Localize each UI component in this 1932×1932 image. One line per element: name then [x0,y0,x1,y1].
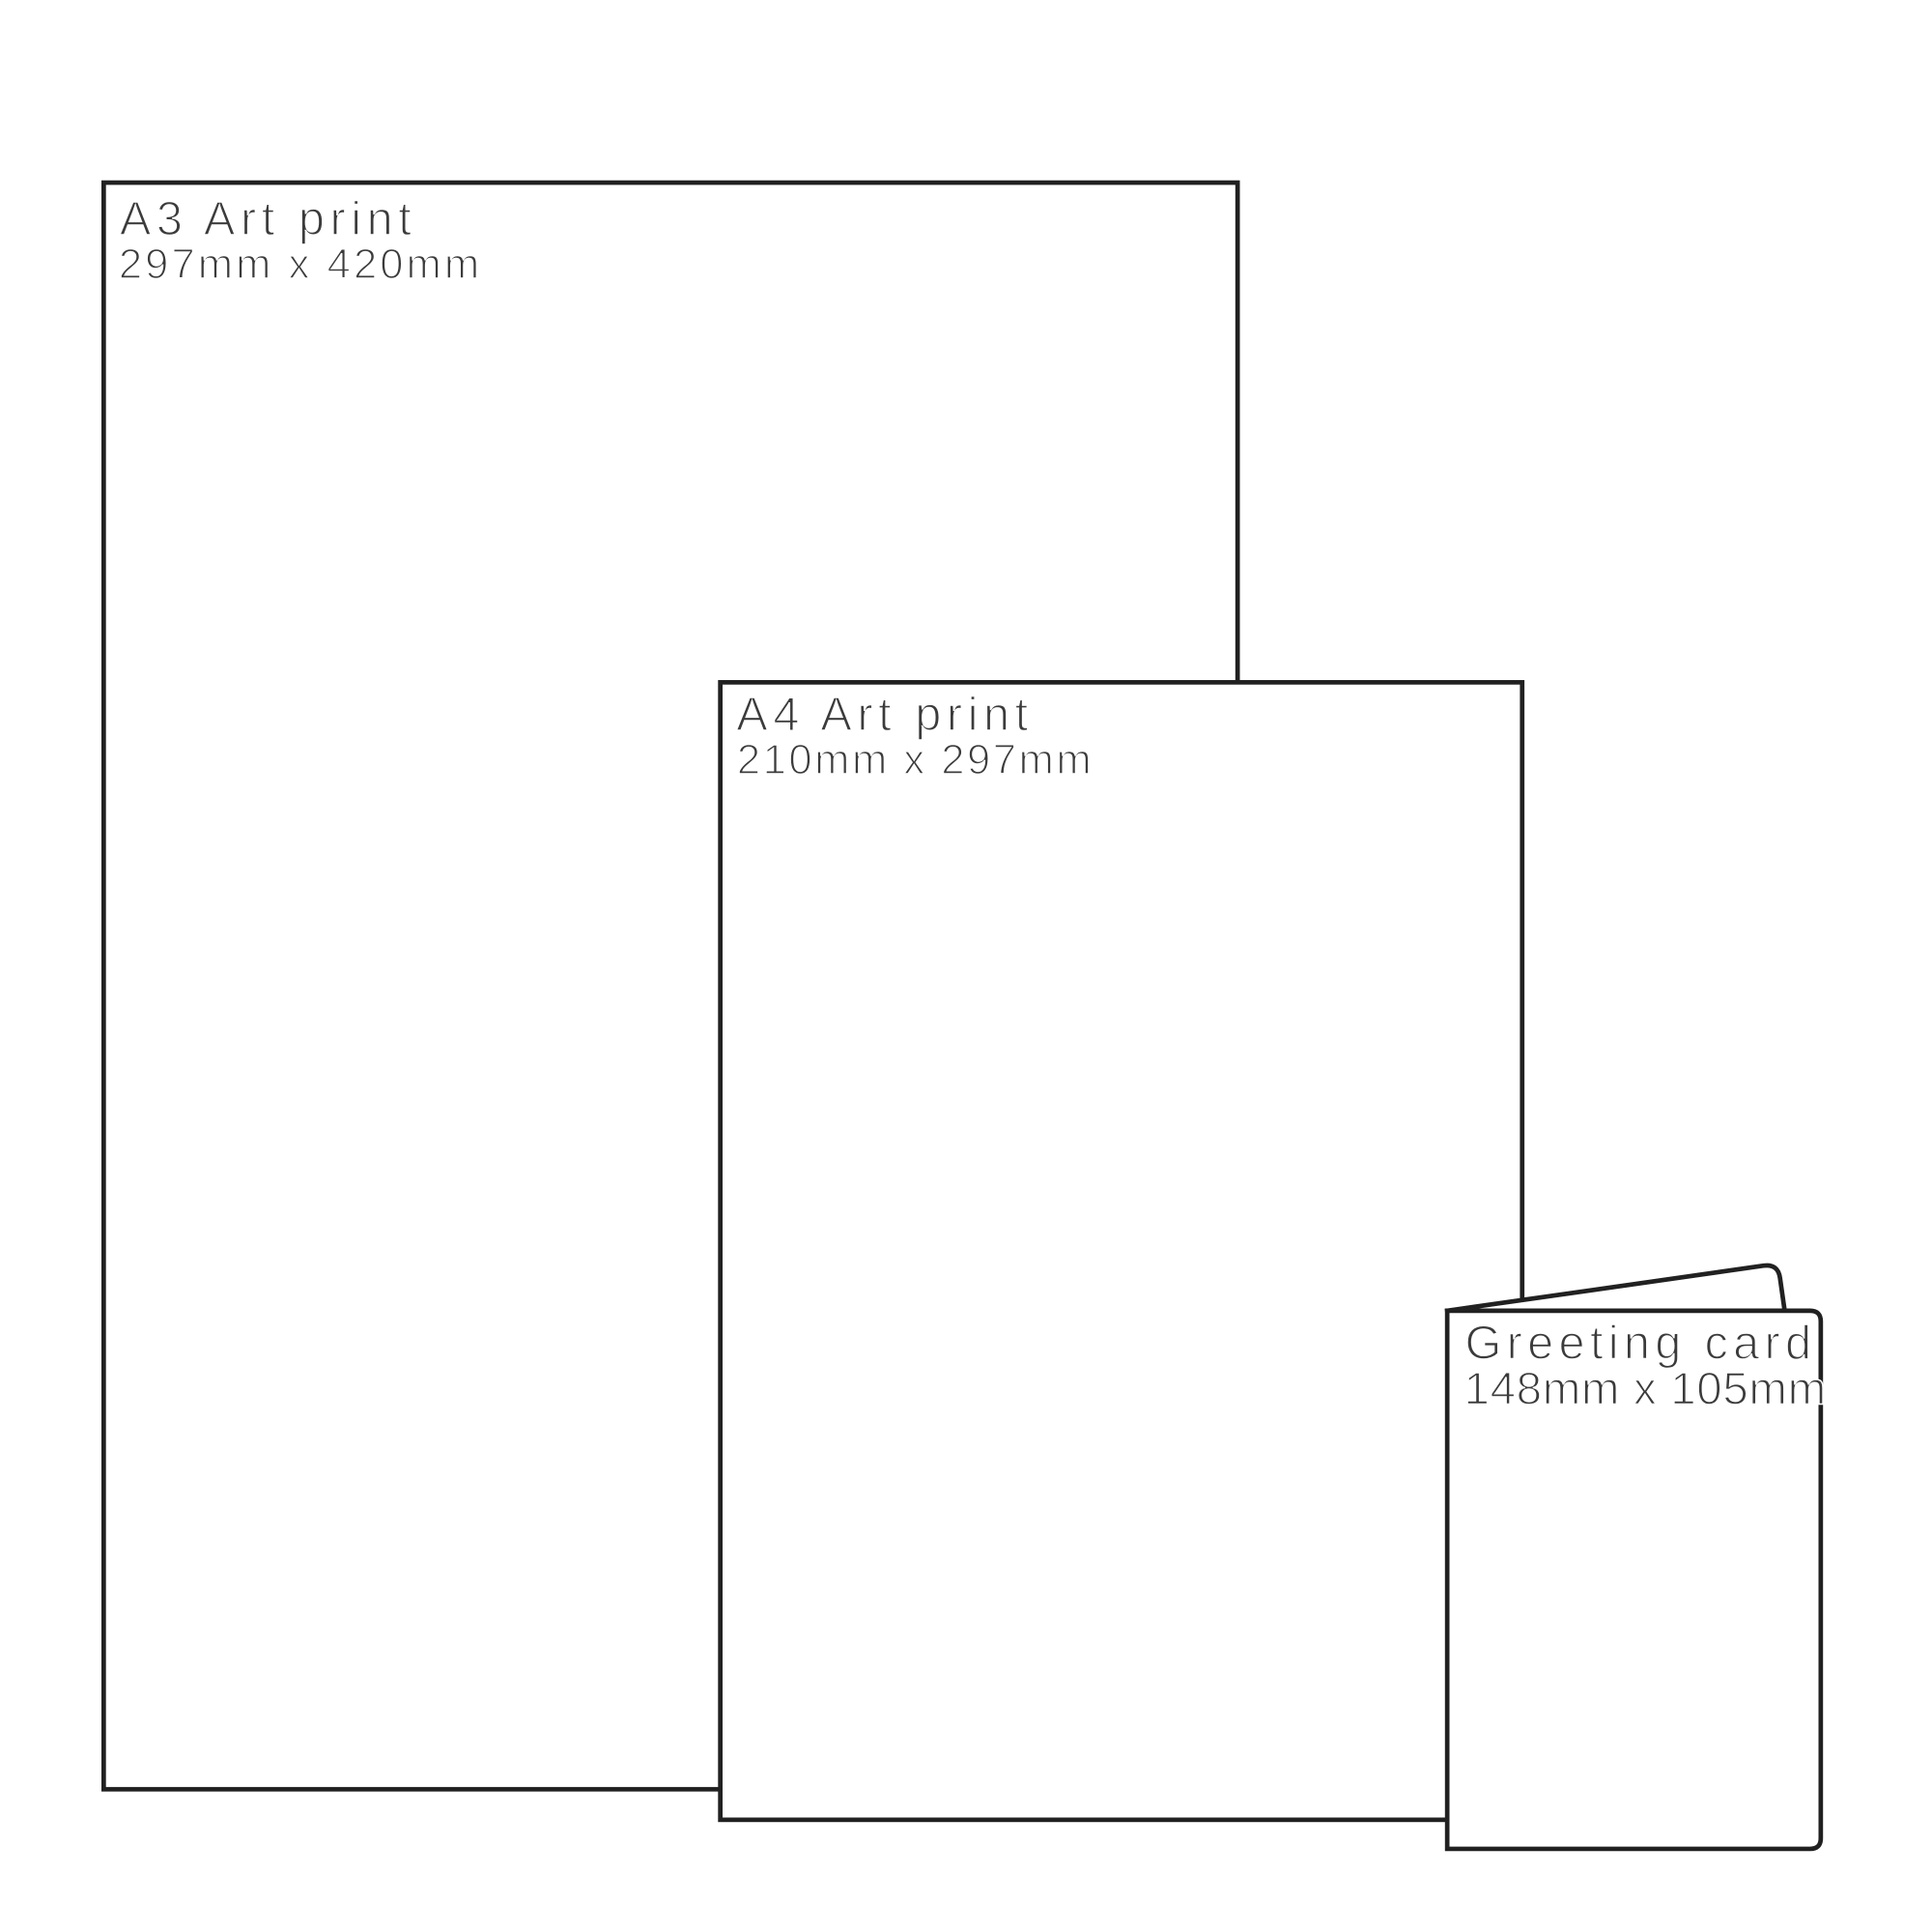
svg-text:A3 Art print: A3 Art print [120,193,416,245]
svg-text:A4 Art print: A4 Art print [736,689,1033,741]
svg-text:297mm x 420mm: 297mm x 420mm [119,241,482,288]
svg-text:148mm x 105mm: 148mm x 105mm [1464,1364,1827,1415]
svg-text:210mm x 297mm: 210mm x 297mm [737,737,1094,783]
svg-text:Greeting card: Greeting card [1465,1317,1817,1369]
